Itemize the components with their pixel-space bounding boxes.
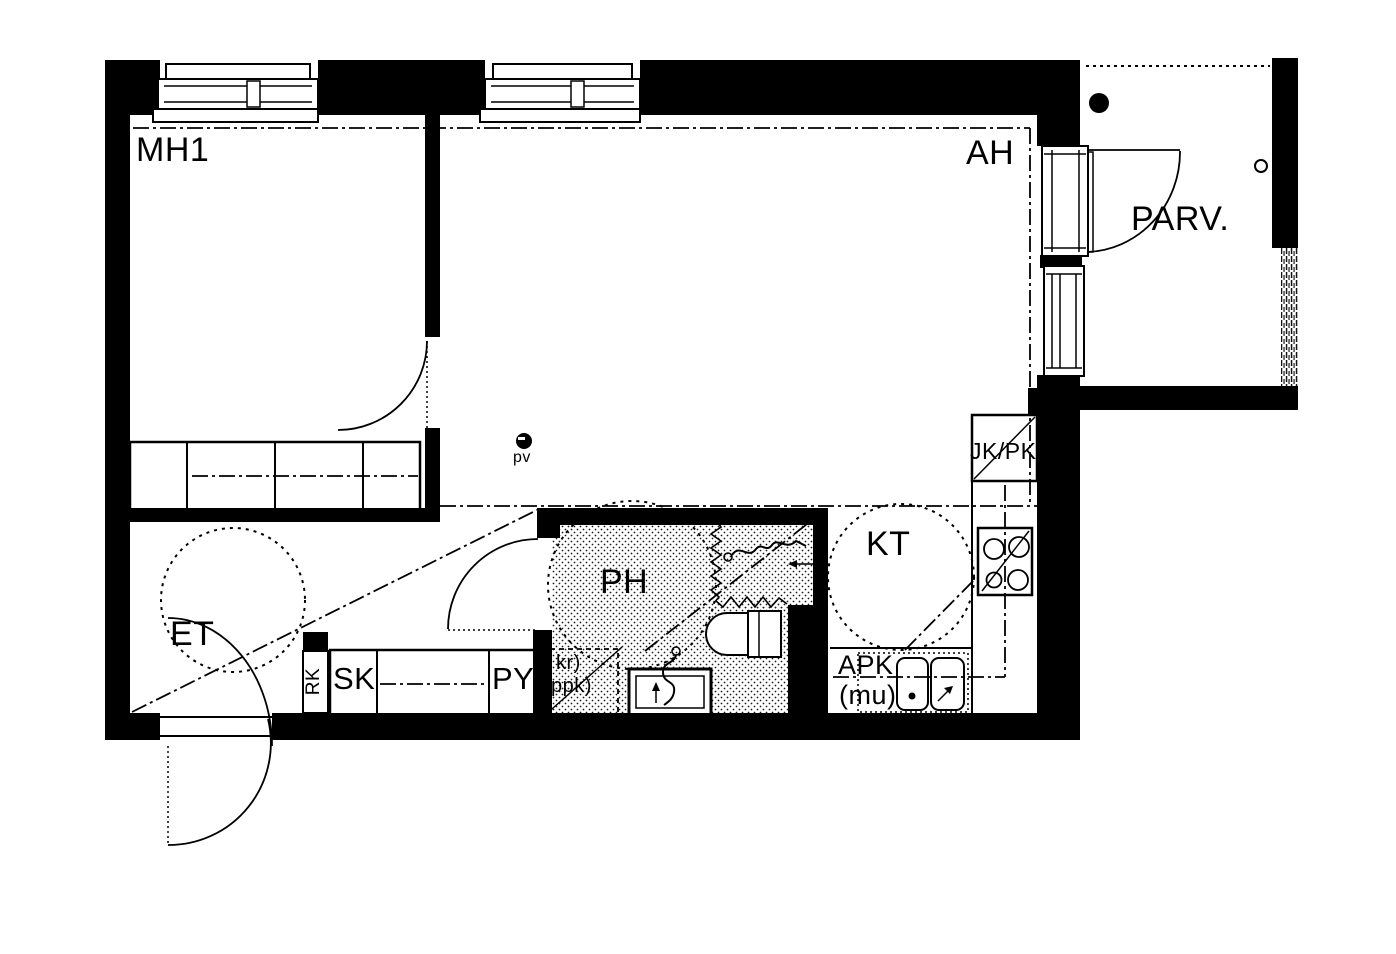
- balcony-label: PARV.: [1131, 202, 1229, 236]
- electrical-panel-label: RK: [304, 668, 323, 695]
- bedroom-window: [153, 64, 318, 122]
- bedroom-partition-upper: [425, 115, 440, 337]
- dryer-note-label: kr): [556, 653, 581, 673]
- balcony-column: [1089, 93, 1109, 113]
- bathroom-label: PH: [600, 565, 648, 599]
- living-room-side-window: [1044, 266, 1084, 376]
- bedroom-partition-lower: [425, 428, 440, 522]
- bathroom-door-arc: [448, 539, 538, 629]
- dishwasher-note-label: (mu): [839, 682, 897, 709]
- balcony-bottom-wall: [1080, 386, 1298, 410]
- bedroom-wardrobe: [130, 442, 420, 510]
- bedroom-label: MH1: [136, 133, 209, 167]
- railing-post: [1255, 160, 1267, 172]
- bedroom-door-arc: [338, 341, 427, 430]
- cleaning-closet-label: SK: [333, 663, 375, 694]
- door-swings: [168, 150, 1180, 845]
- floor-plan-drawing: [0, 0, 1396, 954]
- balcony-right-wall: [1272, 58, 1298, 248]
- floor-plan: MH1 AH PARV. ET PH KT SK PY JK/PK APK (m…: [0, 0, 1396, 954]
- bathroom-left-wall: [533, 630, 552, 717]
- closet-py-label: PY: [492, 663, 534, 694]
- water-point-label: pv: [513, 450, 531, 466]
- duct-shaft: [788, 605, 828, 715]
- dishwasher-label: APK: [838, 652, 894, 679]
- living-room-window: [480, 64, 640, 122]
- bathroom-top-wall: [537, 508, 828, 525]
- balcony-door: [1042, 146, 1093, 256]
- kitchen-label: KT: [866, 527, 910, 561]
- right-wall: [1037, 375, 1080, 740]
- top-wall: [640, 60, 1037, 115]
- water-point-icon: [516, 433, 532, 449]
- fridge-freezer-label: JK/PK: [970, 440, 1036, 463]
- toilet-icon: [706, 611, 781, 657]
- entry-threshold: [160, 713, 272, 740]
- washer-note-label: ppk): [551, 676, 592, 696]
- entry-label: ET: [170, 617, 214, 651]
- living-room-label: AH: [966, 136, 1014, 170]
- left-wall: [105, 60, 130, 740]
- balcony-railing: [1281, 248, 1298, 390]
